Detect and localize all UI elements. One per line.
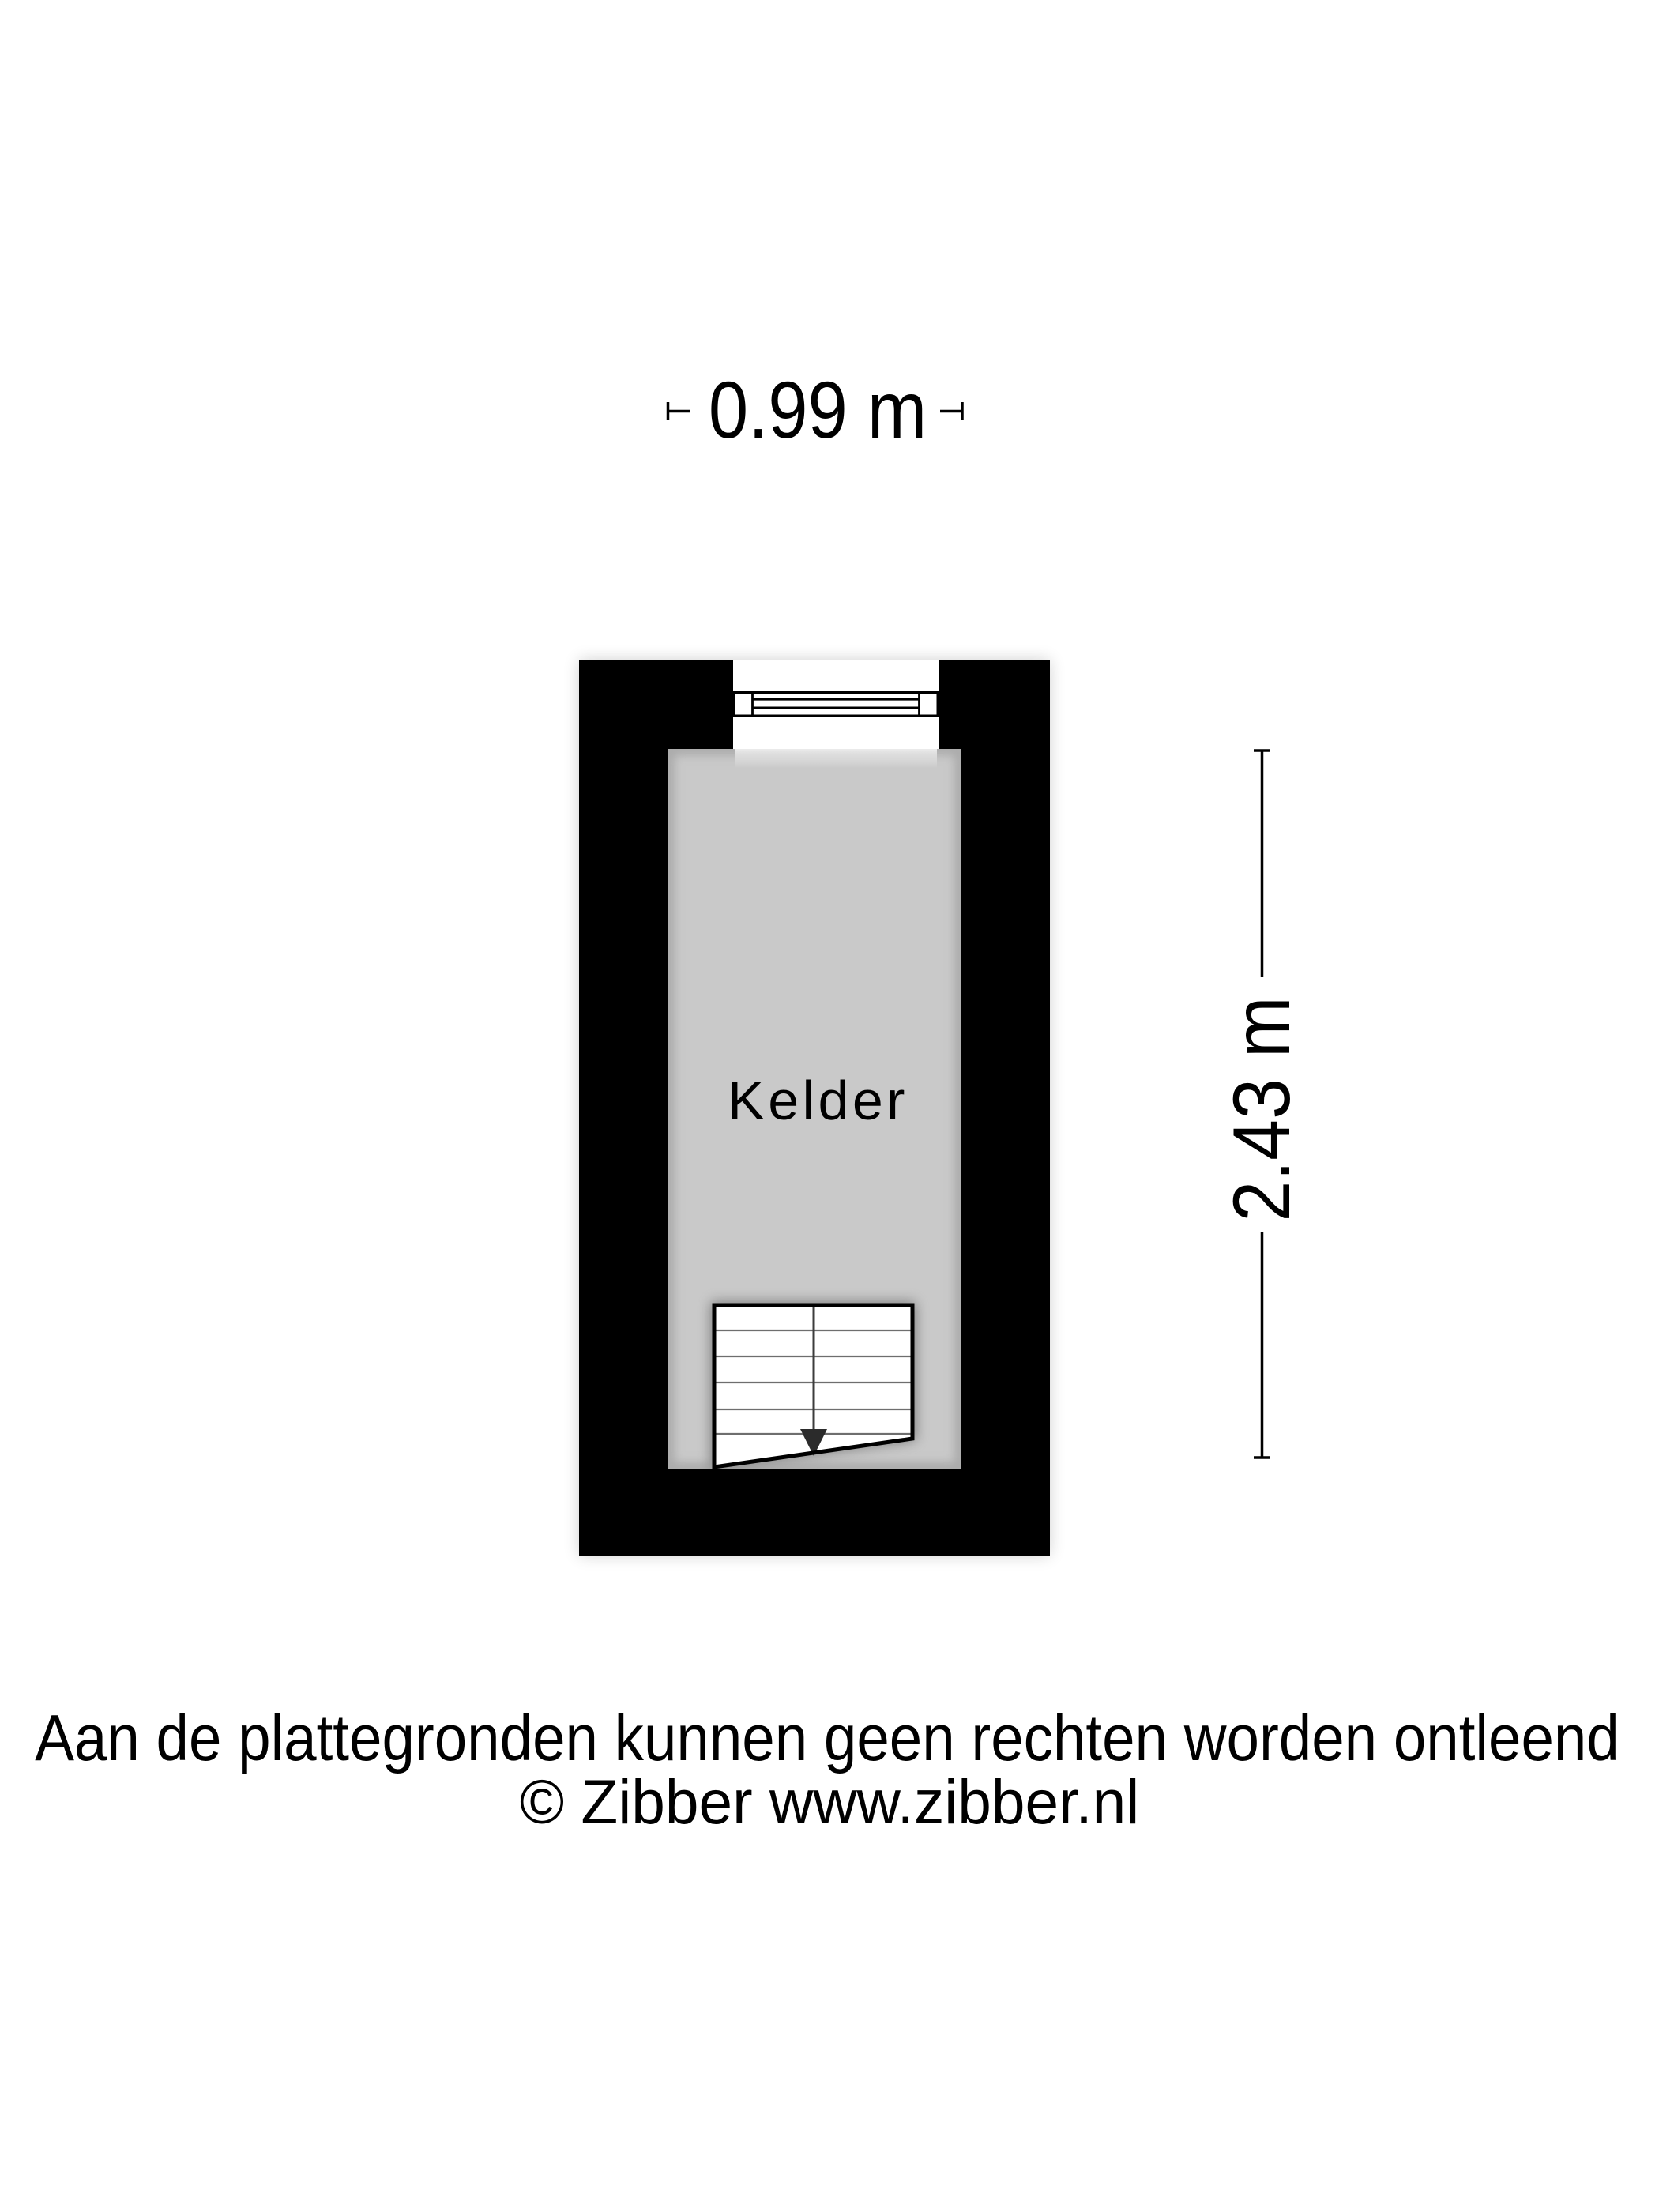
svg-text:2.43 m: 2.43 m <box>1217 996 1307 1221</box>
svg-text:Aan de plattegronden kunnen ge: Aan de plattegronden kunnen geen rechten… <box>35 1701 1619 1774</box>
svg-text:Kelder: Kelder <box>728 1070 908 1131</box>
svg-text:© Zibber www.zibber.nl: © Zibber www.zibber.nl <box>520 1768 1140 1837</box>
svg-text:0.99 m: 0.99 m <box>709 366 927 455</box>
